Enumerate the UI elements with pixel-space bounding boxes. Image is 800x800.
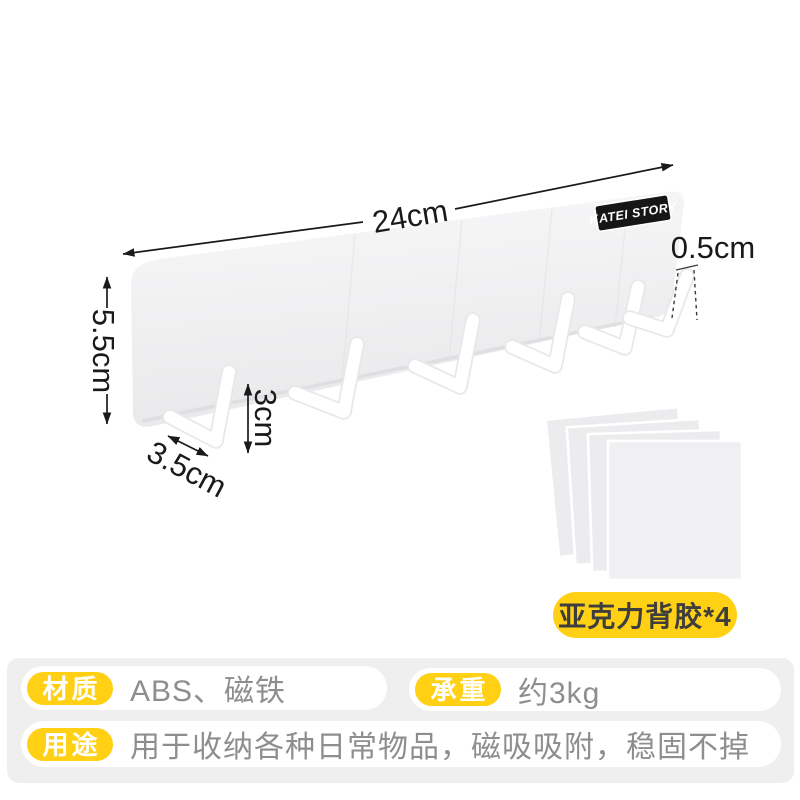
adhesive-sheet [608, 441, 742, 580]
product-illustration: KATEI STORY 24cm 5.5cm 3cm 3.5cm 0.5cm [0, 0, 800, 655]
spec-material: 材质 ABS、磁铁 [21, 666, 387, 710]
spec-material-value: ABS、磁铁 [130, 666, 286, 710]
specs-panel: 材质 ABS、磁铁 承重 约3kg 用途 用于收纳各种日常物品，磁吸吸附，稳固不… [7, 658, 794, 783]
spec-usage-value: 用于收纳各种日常物品，磁吸吸附，稳固不掉 [130, 722, 750, 766]
adhesive-sheets [546, 407, 742, 580]
spec-load-value: 约3kg [518, 668, 600, 712]
dim-bar-height: 5.5cm [86, 277, 121, 424]
spec-usage-label: 用途 [27, 728, 113, 761]
dim-hook-height: 3cm [248, 384, 283, 453]
dim-hook-height-label: 3cm [248, 389, 283, 448]
adhesive-label: 亚克力背胶*4 [558, 600, 731, 632]
spec-load: 承重 约3kg [409, 668, 781, 711]
spec-usage: 用途 用于收纳各种日常物品，磁吸吸附，稳固不掉 [21, 721, 781, 767]
adhesive-label-pill: 亚克力背胶*4 [553, 592, 737, 638]
dim-bar-height-label: 5.5cm [86, 309, 121, 393]
spec-material-label: 材质 [27, 672, 113, 705]
spec-load-label: 承重 [415, 673, 501, 706]
dim-hook-thickness-label: 0.5cm [671, 230, 755, 265]
